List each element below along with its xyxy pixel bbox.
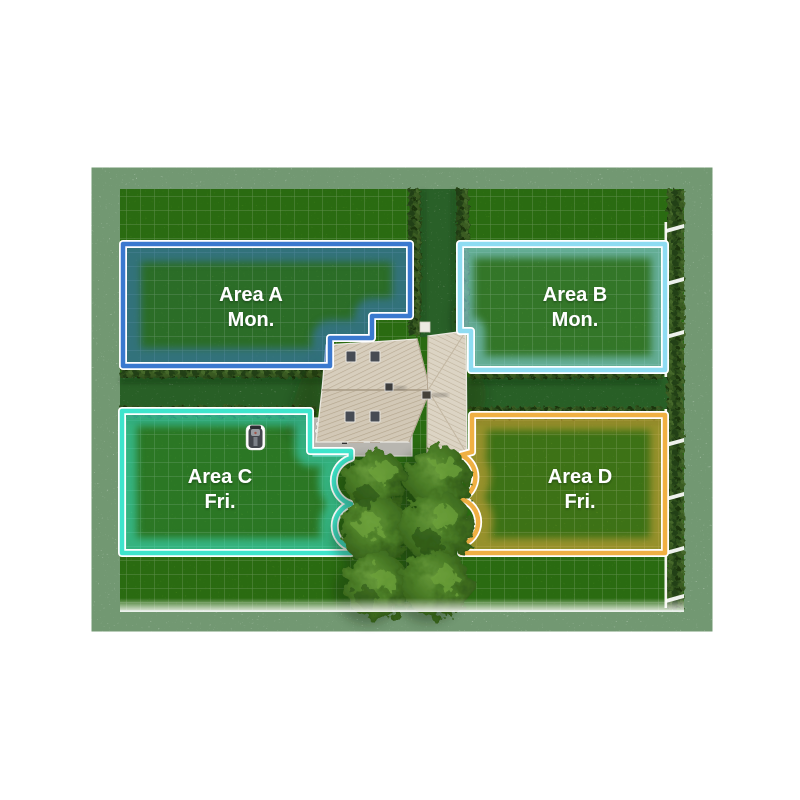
house-utility-box (420, 322, 430, 332)
robot-mower-icon[interactable] (246, 425, 265, 450)
zone-b-label: Area B (543, 284, 607, 306)
mower-app-map-view: Area A Mon. Area B Mon. Area C Fri. Area… (0, 0, 800, 800)
right-boundary-hedge (667, 189, 684, 609)
zone-a-label: Area A (219, 284, 283, 306)
zone-a-day: Mon. (228, 309, 275, 331)
roof-north-slope (322, 339, 430, 390)
bottom-fade (120, 598, 684, 612)
garden-map: Area A Mon. Area B Mon. Area C Fri. Area… (0, 0, 800, 800)
zone-c-label: Area C (188, 466, 252, 488)
zone-b[interactable] (460, 244, 665, 370)
zone-d-label: Area D (548, 466, 612, 488)
zone-b-day: Mon. (552, 309, 599, 331)
zone-c-day: Fri. (204, 491, 235, 513)
zone-d-day: Fri. (564, 491, 595, 513)
trees (332, 445, 473, 624)
